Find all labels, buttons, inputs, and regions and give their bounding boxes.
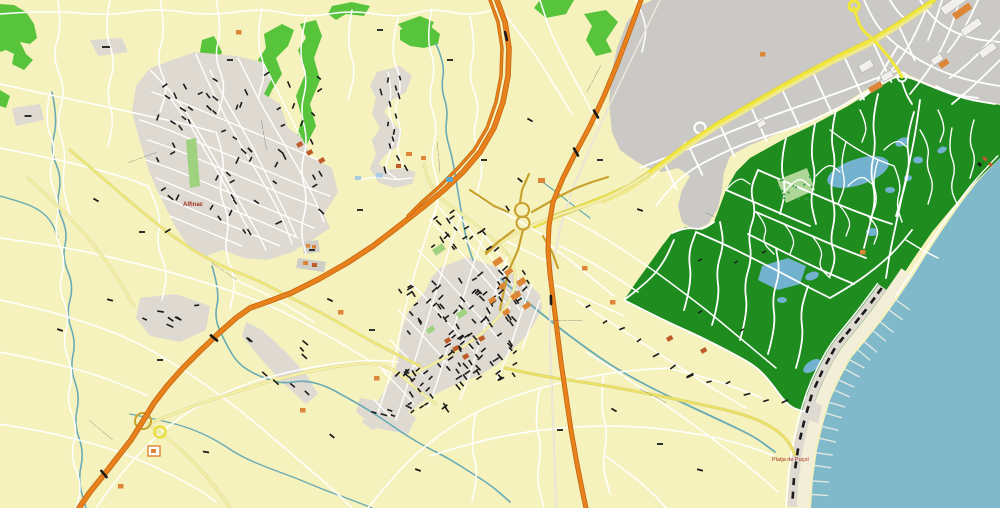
- svg-text:____ __ ______: ____ __ ______: [551, 316, 583, 321]
- svg-text:Platja de Puçol: Platja de Puçol: [772, 457, 809, 463]
- svg-text:Alfinac: Alfinac: [183, 202, 204, 208]
